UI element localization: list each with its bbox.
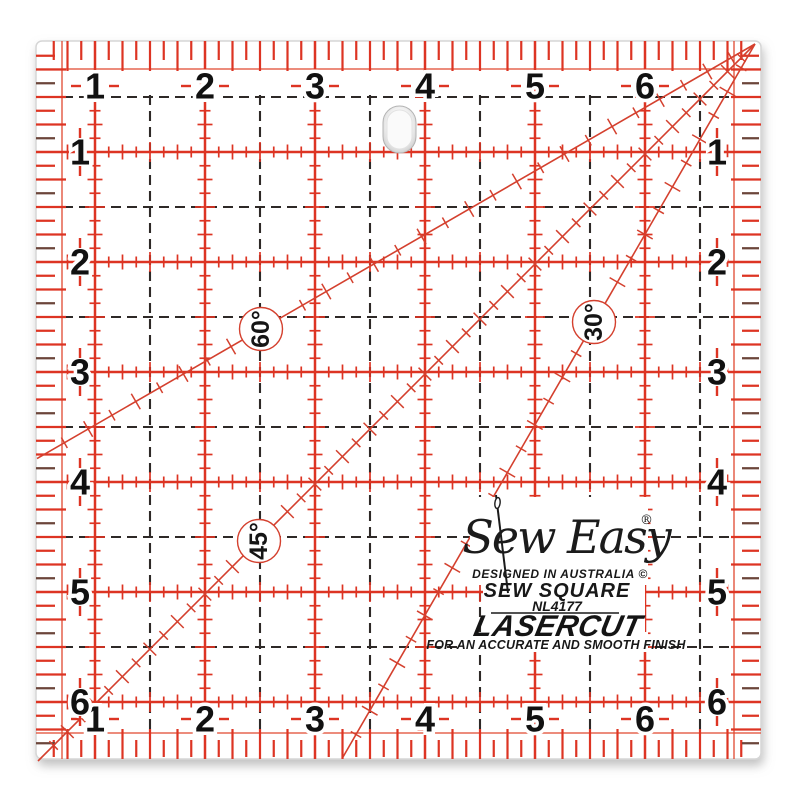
brand-tagline: FOR AN ACCURATE AND SMOOTH FINISH (426, 638, 686, 652)
ruler-number-top-3: 3 (305, 66, 325, 107)
ruler-number-top-2: 2 (195, 66, 215, 107)
ruler-number-top-4: 4 (415, 66, 435, 107)
ruler-number-bottom-5: 5 (525, 699, 545, 740)
ruler-number-bottom-4: 4 (415, 699, 435, 740)
square-ruler: 654321654321123456123456 Sew Easy ® DESI… (0, 0, 800, 800)
angle-label-30: 30° (580, 303, 608, 341)
ruler-number-bottom-6: 6 (635, 699, 655, 740)
angle-label-45: 45° (245, 522, 273, 560)
product-photo: 654321654321123456123456 Sew Easy ® DESI… (0, 0, 800, 800)
brand-designed-in: DESIGNED IN AUSTRALIA © (472, 567, 648, 581)
registered-mark: ® (640, 513, 653, 528)
ruler-number-top-1: 1 (85, 66, 105, 107)
hang-hole (383, 106, 416, 153)
ruler-number-bottom-2: 2 (195, 699, 215, 740)
ruler-number-top-5: 5 (525, 66, 545, 107)
angle-label-60: 60° (247, 310, 275, 348)
ruler-number-top-6: 6 (635, 66, 655, 107)
ruler-number-bottom-3: 3 (305, 699, 325, 740)
needle-eye-icon (494, 497, 501, 509)
